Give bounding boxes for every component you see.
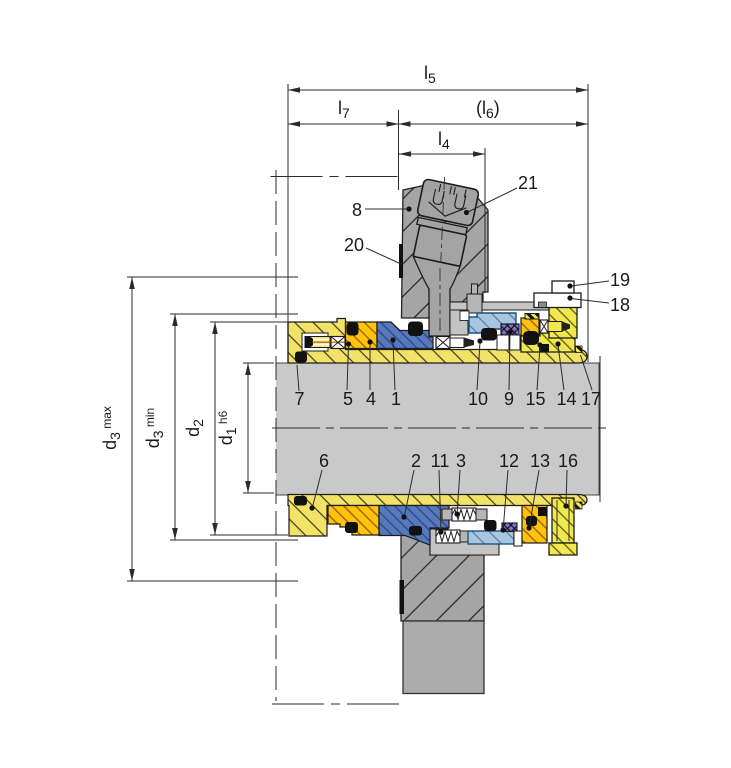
svg-text:4: 4	[366, 389, 376, 409]
svg-text:3: 3	[456, 451, 466, 471]
svg-text:20: 20	[344, 235, 364, 255]
svg-text:18: 18	[610, 295, 630, 315]
svg-text:5: 5	[343, 389, 353, 409]
svg-text:10: 10	[468, 389, 488, 409]
svg-text:11: 11	[431, 451, 450, 471]
svg-text:19: 19	[610, 270, 630, 290]
svg-text:21: 21	[518, 173, 538, 193]
svg-text:17: 17	[581, 389, 601, 409]
svg-text:9: 9	[504, 389, 514, 409]
svg-text:1: 1	[391, 389, 401, 409]
svg-text:6: 6	[319, 451, 329, 471]
svg-text:12: 12	[499, 451, 519, 471]
svg-text:7: 7	[294, 389, 304, 409]
svg-text:2: 2	[411, 451, 421, 471]
svg-text:15: 15	[525, 389, 545, 409]
svg-text:14: 14	[556, 389, 576, 409]
svg-text:13: 13	[530, 451, 550, 471]
svg-text:16: 16	[558, 451, 578, 471]
svg-text:8: 8	[352, 200, 362, 220]
